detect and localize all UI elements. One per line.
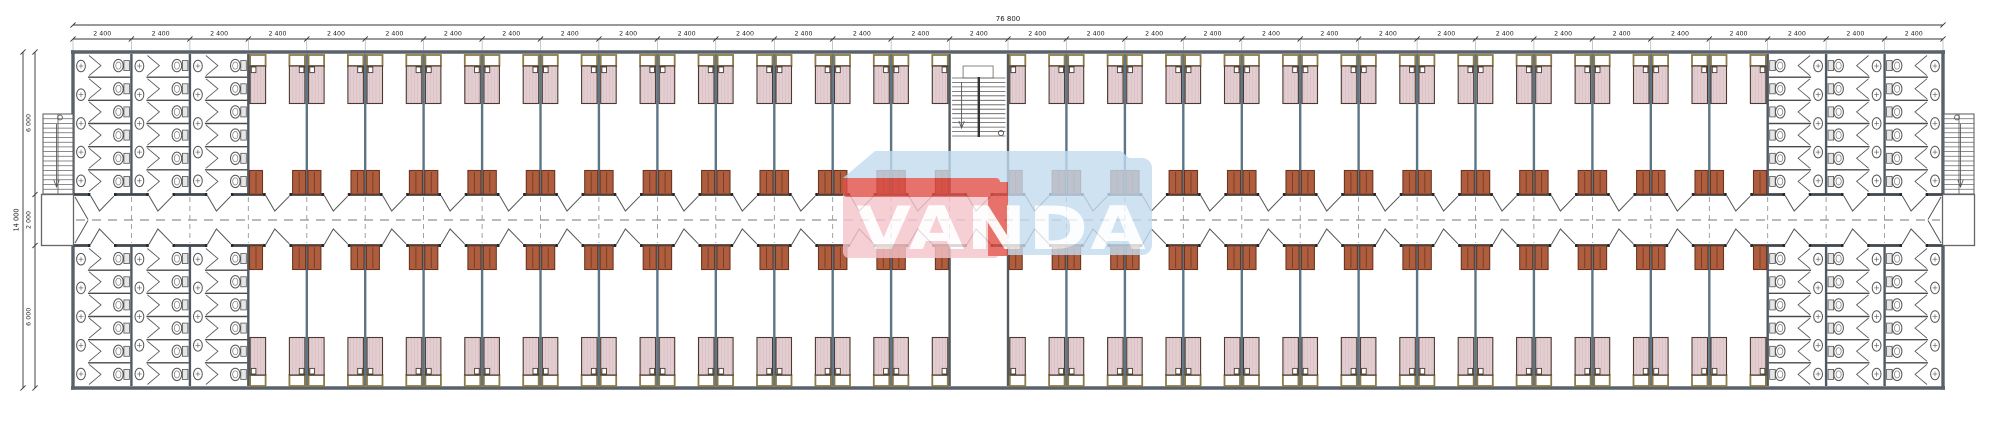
bed-headboard [1477,55,1493,66]
wardrobe-icon [1520,171,1533,195]
sink-icon [194,368,203,380]
toilet-tank [124,130,129,140]
toilet-bowl [231,83,241,95]
toilet-icon [114,106,130,118]
door-jamb [497,244,499,247]
bed-headboard [893,55,909,66]
door-jamb [1750,193,1752,196]
toilet-tank [1770,277,1776,287]
toilet-tank [1828,61,1834,71]
toilet-icon [1828,299,1843,311]
bed-icon [757,338,773,387]
wardrobe-icon [1695,171,1708,195]
toilet-tank [124,369,129,379]
bed-icon [1049,338,1065,387]
bed-headboard [1244,375,1260,386]
bed-pillow-notch [1595,67,1600,73]
toilet-bowl [114,345,124,357]
bed-headboard [1360,55,1376,66]
bed-headboard [1575,375,1591,386]
door-jamb [1517,193,1519,196]
door-jamb [1458,244,1460,247]
door-jamb [698,244,700,247]
bed-icon [1049,55,1065,104]
sink-icon [1814,253,1823,265]
wardrobe-icon [717,171,730,195]
bed-pillow-notch [1537,67,1542,73]
wardrobe-icon [1418,246,1431,270]
wardrobe-icon [643,171,656,195]
bed-icon [1127,338,1143,387]
bed-pillow-notch [1537,368,1542,374]
bed-headboard [1185,55,1201,66]
door-jamb [523,244,525,247]
toilet-bowl [1775,299,1785,311]
bed-pillow-notch [475,368,480,374]
bed-icon [1341,55,1357,104]
toilet-tank [182,277,188,287]
bed-pillow-notch [1420,67,1425,73]
door-jamb [406,244,408,247]
dim-bay-label: 2 400 [1554,31,1572,38]
door-jamb [672,244,674,247]
sink-icon [77,118,86,130]
toilet-bowl [1834,345,1844,357]
dim-bay-label: 2 400 [152,31,170,38]
toilet-tank [182,153,188,163]
wardrobe-icon [1360,246,1373,270]
bed-headboard [718,55,734,66]
bed-icon [523,55,539,104]
bed-icon [1283,55,1299,104]
wardrobe-icon [483,171,496,195]
sink-icon [194,89,203,101]
bed-headboard [699,375,715,386]
bed-headboard [1536,375,1552,386]
bed-headboard [309,375,325,386]
toilet-bowl [1834,59,1844,71]
sink-icon [135,253,144,265]
bed-headboard [1049,55,1065,66]
door-jamb [289,244,291,247]
door-jamb [1315,244,1317,247]
toilet-tank [1770,107,1776,117]
toilet-tank [1828,153,1834,163]
bed-pillow-notch [1410,67,1415,73]
bed-pillow-notch [1479,67,1484,73]
wardrobe-icon [659,171,672,195]
sink-icon [1931,368,1940,380]
bed-pillow-notch [1303,368,1308,374]
bed-headboard [757,55,773,66]
wardrobe-icon [1301,246,1314,270]
bed-headboard [465,375,481,386]
toilet-bowl [1775,252,1785,264]
toilet-bowl [231,322,241,334]
toilet-icon [1770,106,1785,118]
bed-pillow-notch [1011,67,1016,73]
bed-headboard [659,55,675,66]
bed-icon [1750,55,1766,104]
bed-icon [1477,338,1493,387]
toilet-tank [124,277,129,287]
wardrobe-icon [600,246,613,270]
toilet-tank [182,254,188,264]
bed-pillow-notch [1526,67,1531,73]
sink-icon [135,368,144,380]
bed-pillow-notch [1176,368,1181,374]
door-jamb [614,193,616,196]
bed-pillow-notch [251,67,256,73]
sink-icon [1872,175,1881,187]
bed-pillow-notch [1117,368,1122,374]
toilet-bowl [1834,106,1844,118]
bed-icon [1341,338,1357,387]
dim-bay-label: 2 400 [385,31,403,38]
exterior-staircase-left [42,114,74,246]
toilet-icon [1887,252,1902,264]
bed-icon [1283,338,1299,387]
toilet-tank [1887,254,1893,264]
door-jamb [523,193,525,196]
bed-icon [367,55,383,104]
bed-icon [835,55,851,104]
bed-pillow-notch [591,368,596,374]
toilet-icon [1828,152,1843,164]
dim-bay-label: 2 400 [736,31,754,38]
dim-bay-label: 2 400 [911,31,929,38]
bed-headboard [601,55,617,66]
bed-pillow-notch [708,368,713,374]
wardrobe-icon [308,171,321,195]
bed-headboard [718,375,734,386]
bed-headboard [1185,375,1201,386]
toilet-bowl [114,106,124,118]
toilet-bowl [1834,152,1844,164]
sink-icon [1931,60,1940,72]
toilet-tank [1828,84,1834,94]
bed-headboard [1166,55,1182,66]
toilet-tank [241,153,247,163]
toilet-icon [1887,276,1902,288]
bed-headboard [1400,375,1416,386]
toilet-tank [124,300,129,310]
door-jamb [439,244,441,247]
sink-icon [1814,146,1823,158]
toilet-icon [172,83,188,95]
sink-icon [135,282,144,294]
sink-icon [194,340,203,352]
sink-icon [77,311,86,323]
toilet-tank [182,84,188,94]
bed-pillow-notch [368,67,373,73]
toilet-bowl [1834,299,1844,311]
bed-pillow-notch [1234,67,1239,73]
door-jamb [731,244,733,247]
wardrobe-icon [819,171,832,195]
bed-pillow-notch [299,368,304,374]
dim-bay-label: 2 400 [93,31,111,38]
toilet-tank [182,176,188,186]
toilet-bowl [1892,59,1902,71]
door-jamb [263,193,265,196]
sink-icon [1814,368,1823,380]
door-jamb [1607,193,1609,196]
sink-icon [194,175,203,187]
toilet-icon [1887,299,1902,311]
bed-pillow-notch [1293,368,1298,374]
wardrobe-icon [1754,171,1767,195]
bed-headboard [1127,55,1143,66]
door-jamb [1666,244,1668,247]
wardrobe-icon [1403,171,1416,195]
sink-icon [1814,60,1823,72]
toilet-icon [1770,322,1785,334]
bed-headboard [542,55,558,66]
toilet-icon [172,299,188,311]
toilet-tank [1828,323,1834,333]
wardrobe-icon [1594,171,1607,195]
dim-left-segment-label: 2 000 [26,211,33,229]
door-jamb [1783,244,1785,247]
door-jamb [1491,193,1493,196]
bed-icon [874,338,890,387]
toilet-bowl [231,276,241,288]
toilet-tank [1887,61,1893,71]
wardrobe-icon [600,171,613,195]
bed-headboard [1692,55,1708,66]
toilet-icon [172,59,188,71]
bed-icon [601,55,617,104]
door-jamb [1692,244,1694,247]
bed-icon [1166,55,1182,104]
toilet-tank [1828,369,1834,379]
wardrobe-icon [1535,246,1548,270]
bed-pillow-notch [719,67,724,73]
bed-pillow-notch [1011,368,1016,374]
bed-headboard [1750,375,1766,386]
door-jamb [497,193,499,196]
bed-headboard [465,55,481,66]
bed-icon [1068,55,1084,104]
bed-headboard [1419,55,1435,66]
bed-pillow-notch [1362,368,1367,374]
bed-icon [699,338,715,387]
bed-icon [1517,55,1533,104]
toilet-icon [231,322,247,334]
dim-bay-label: 2 400 [1087,31,1105,38]
bed-icon [1594,55,1610,104]
bed-pillow-notch [650,368,655,374]
bed-headboard [1302,55,1318,66]
bed-pillow-notch [942,368,947,374]
toilet-icon [114,175,130,187]
bed-pillow-notch [591,67,596,73]
wardrobe-icon [425,171,438,195]
wardrobe-icon [409,171,422,195]
toilet-tank [182,346,188,356]
toilet-icon [1828,59,1843,71]
bed-headboard [1458,55,1474,66]
toilet-bowl [172,299,182,311]
toilet-bowl [114,368,124,380]
door-jamb [1283,244,1285,247]
bed-headboard [406,375,422,386]
bed-headboard [523,375,539,386]
bed-icon [699,55,715,104]
sink-icon [194,118,203,130]
bed-pillow-notch [660,67,665,73]
toilet-tank [124,346,129,356]
door-jamb [1900,193,1902,196]
bed-pillow-notch [1176,67,1181,73]
door-jamb [640,244,642,247]
wardrobe-icon [1286,171,1299,195]
toilet-icon [1770,152,1785,164]
wardrobe-icon [1360,171,1373,195]
bed-icon [348,55,364,104]
bed-icon [1750,338,1766,387]
door-jamb [146,193,148,196]
toilet-tank [241,61,247,71]
sink-icon [135,60,144,72]
bed-pillow-notch [1760,368,1765,374]
exterior-staircase-right [1943,114,1975,246]
door-jamb [1724,244,1726,247]
toilet-icon [1770,368,1785,380]
bed-headboard [640,55,656,66]
bed-pillow-notch [1643,67,1648,73]
bed-pillow-notch [1069,67,1074,73]
sink-icon [1872,89,1881,101]
toilet-bowl [1834,83,1844,95]
toilet-tank [1770,176,1776,186]
bed-pillow-notch [1303,67,1308,73]
toilet-icon [1828,276,1843,288]
wardrobe-icon [542,171,555,195]
stair-landing [1943,195,1975,246]
toilet-tank [241,107,247,117]
toilet-tank [1828,130,1834,140]
bed-pillow-notch [1468,67,1473,73]
toilet-tank [241,346,247,356]
bed-headboard [367,375,383,386]
bed-headboard [582,375,598,386]
toilet-bowl [1892,345,1902,357]
toilet-bowl [172,83,182,95]
bed-headboard [815,55,831,66]
bed-pillow-notch [660,368,665,374]
door-jamb [205,193,207,196]
toilet-bowl [114,129,124,141]
door-jamb [1724,193,1726,196]
toilet-icon [1770,345,1785,357]
toilet-bowl [1834,368,1844,380]
bed-headboard [1692,375,1708,386]
bed-icon [582,55,598,104]
toilet-bowl [172,322,182,334]
bed-headboard [348,55,364,66]
bed-headboard [1458,375,1474,386]
wardrobe-icon [542,246,555,270]
bed-pillow-notch [1410,368,1415,374]
dim-bay-label: 2 400 [1320,31,1338,38]
door-jamb [1517,244,1519,247]
door-jamb [1400,193,1402,196]
sink-icon [1931,118,1940,130]
wardrobe-icon [1520,246,1533,270]
bed-headboard [425,375,441,386]
toilet-tank [241,323,247,333]
bed-headboard [893,375,909,386]
toilet-icon [172,368,188,380]
toilet-bowl [1834,252,1844,264]
toilet-tank [1887,369,1893,379]
toilet-icon [231,299,247,311]
vanda-floorplan-drawing: 76 8002 4002 4002 4002 4002 4002 4002 40… [0,0,2000,427]
bed-headboard [250,375,266,386]
bed-icon [1653,338,1669,387]
toilet-icon [1887,83,1902,95]
toilet-icon [1887,152,1902,164]
bed-pillow-notch [1351,67,1356,73]
bed-icon [1634,338,1650,387]
dim-bay-label: 2 400 [269,31,287,38]
wardrobe-icon [717,246,730,270]
wardrobe-icon [425,246,438,270]
sink-icon [194,311,203,323]
bed-headboard [484,375,500,386]
toilet-icon [1887,368,1902,380]
door-jamb [406,193,408,196]
door-jamb [815,193,817,196]
bed-headboard [815,375,831,386]
wardrobe-icon [1403,246,1416,270]
toilet-bowl [172,175,182,187]
bed-icon [815,55,831,104]
door-jamb [640,193,642,196]
door-jamb [1166,244,1168,247]
wardrobe-icon [250,246,263,270]
door-jamb [439,193,441,196]
sink-icon [1872,60,1881,72]
bed-headboard [289,55,305,66]
sink-icon [1814,340,1823,352]
toilet-icon [1887,322,1902,334]
bed-headboard [659,375,675,386]
toilet-tank [1887,130,1893,140]
bed-icon [425,55,441,104]
wardrobe-icon [409,246,422,270]
door-jamb [1224,193,1226,196]
toilet-bowl [1892,276,1902,288]
toilet-tank [124,107,129,117]
door-jamb [1283,193,1285,196]
bed-headboard [542,375,558,386]
door-jamb [582,193,584,196]
bed-icon [659,338,675,387]
bed-headboard [1302,375,1318,386]
toilet-bowl [1834,129,1844,141]
bed-icon [1360,338,1376,387]
bed-pillow-notch [1712,67,1717,73]
bed-icon [367,338,383,387]
toilet-bowl [1892,299,1902,311]
bed-headboard [348,375,364,386]
door-jamb [1809,244,1811,247]
bed-icon [1634,55,1650,104]
toilet-bowl [172,59,182,71]
